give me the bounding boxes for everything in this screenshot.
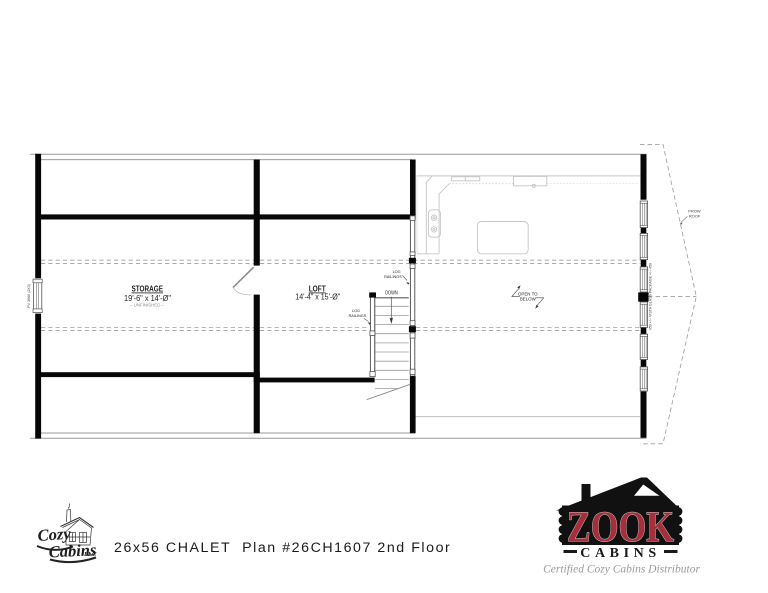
svg-text:STORAGE: STORAGE bbox=[132, 285, 164, 294]
svg-text:BELOW: BELOW bbox=[520, 297, 537, 302]
svg-text:RAILINGS: RAILINGS bbox=[384, 275, 402, 279]
svg-text:26x56 CHALET Plan #26CH1607 2: 26x56 CHALET Plan #26CH1607 2nd Floor bbox=[114, 540, 451, 556]
svg-text:Certified Cozy Cabins Distribu: Certified Cozy Cabins Distributor bbox=[543, 563, 700, 575]
svg-text:ZOOK: ZOOK bbox=[567, 503, 674, 551]
svg-text:RAILINGS: RAILINGS bbox=[349, 314, 367, 318]
svg-text:PV 3660 (2X3): PV 3660 (2X3) bbox=[27, 284, 31, 308]
svg-text:14'-4" x 15'-Ø": 14'-4" x 15'-Ø" bbox=[295, 292, 340, 301]
svg-text:LOG: LOG bbox=[352, 309, 360, 313]
svg-text:19'-6" x 14'-Ø": 19'-6" x 14'-Ø" bbox=[124, 294, 171, 303]
svg-text:ROOF: ROOF bbox=[689, 214, 701, 219]
svg-text:DOWN: DOWN bbox=[385, 290, 398, 296]
svg-text:450 +/− VISTA GLASS PACKAGE +/: 450 +/− VISTA GLASS PACKAGE +/− 450 bbox=[649, 263, 653, 330]
svg-text:LOG: LOG bbox=[393, 270, 401, 274]
svg-text:CABINS: CABINS bbox=[580, 546, 661, 561]
svg-text:– UNFINISHED –: – UNFINISHED – bbox=[130, 303, 164, 308]
